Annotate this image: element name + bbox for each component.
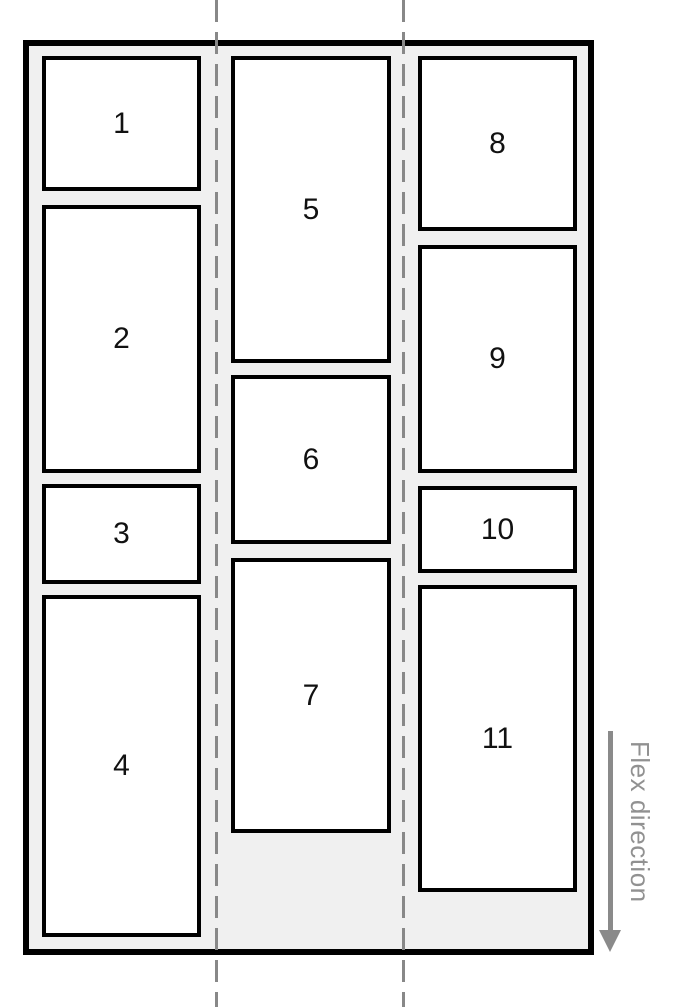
flex-item-4: 4 xyxy=(42,595,201,937)
flex-direction-arrow xyxy=(608,731,613,932)
flex-item-10: 10 xyxy=(418,486,577,573)
arrow-down-icon xyxy=(599,930,621,952)
flexbox-diagram: 1 2 3 4 5 6 7 8 9 10 11 Flex direction xyxy=(0,0,674,1007)
column-wrap-guide-1 xyxy=(215,0,218,1007)
flex-item-2: 2 xyxy=(42,205,201,473)
flex-item-8: 8 xyxy=(418,56,577,231)
flex-item-3: 3 xyxy=(42,484,201,584)
column-wrap-guide-2 xyxy=(402,0,405,1007)
flex-item-1: 1 xyxy=(42,56,201,191)
flex-item-7: 7 xyxy=(231,558,391,833)
flex-direction-label: Flex direction xyxy=(624,741,655,903)
flex-item-5: 5 xyxy=(231,56,391,363)
flex-item-6: 6 xyxy=(231,375,391,544)
flex-item-9: 9 xyxy=(418,245,577,473)
flex-item-11: 11 xyxy=(418,585,577,892)
